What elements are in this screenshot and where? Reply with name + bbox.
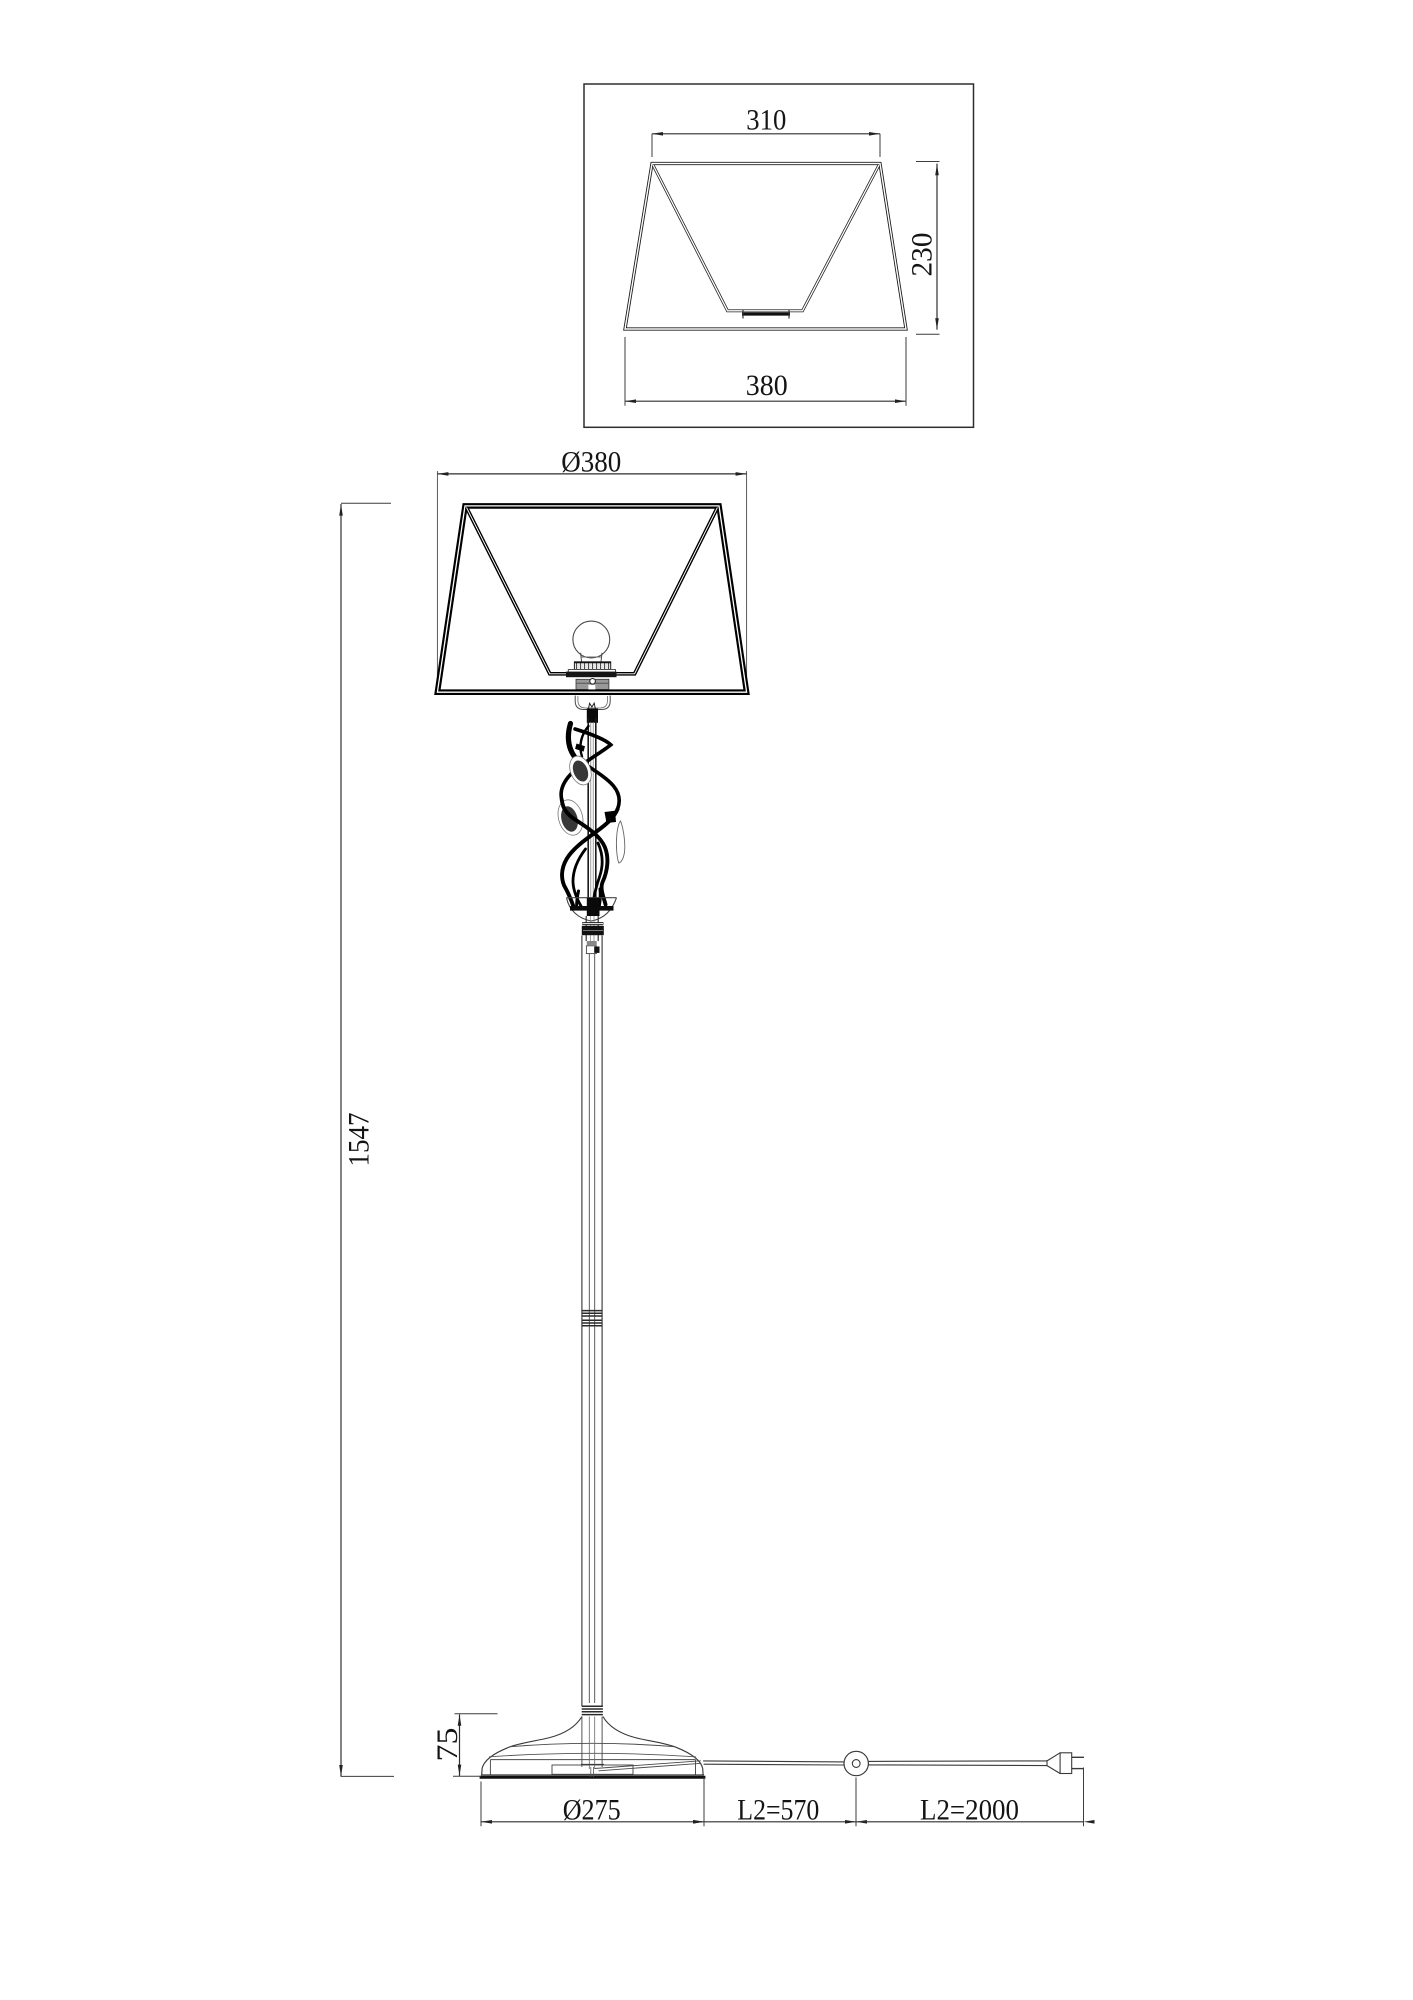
svg-text:1547: 1547: [343, 1113, 376, 1167]
svg-text:Ø275: Ø275: [563, 1793, 621, 1826]
svg-text:310: 310: [746, 103, 786, 136]
svg-text:Ø380: Ø380: [561, 445, 621, 478]
svg-text:L2=2000: L2=2000: [920, 1793, 1019, 1826]
svg-text:230: 230: [906, 233, 939, 277]
svg-text:75: 75: [431, 1728, 464, 1762]
svg-text:L2=570: L2=570: [737, 1793, 819, 1826]
svg-text:380: 380: [746, 369, 788, 402]
